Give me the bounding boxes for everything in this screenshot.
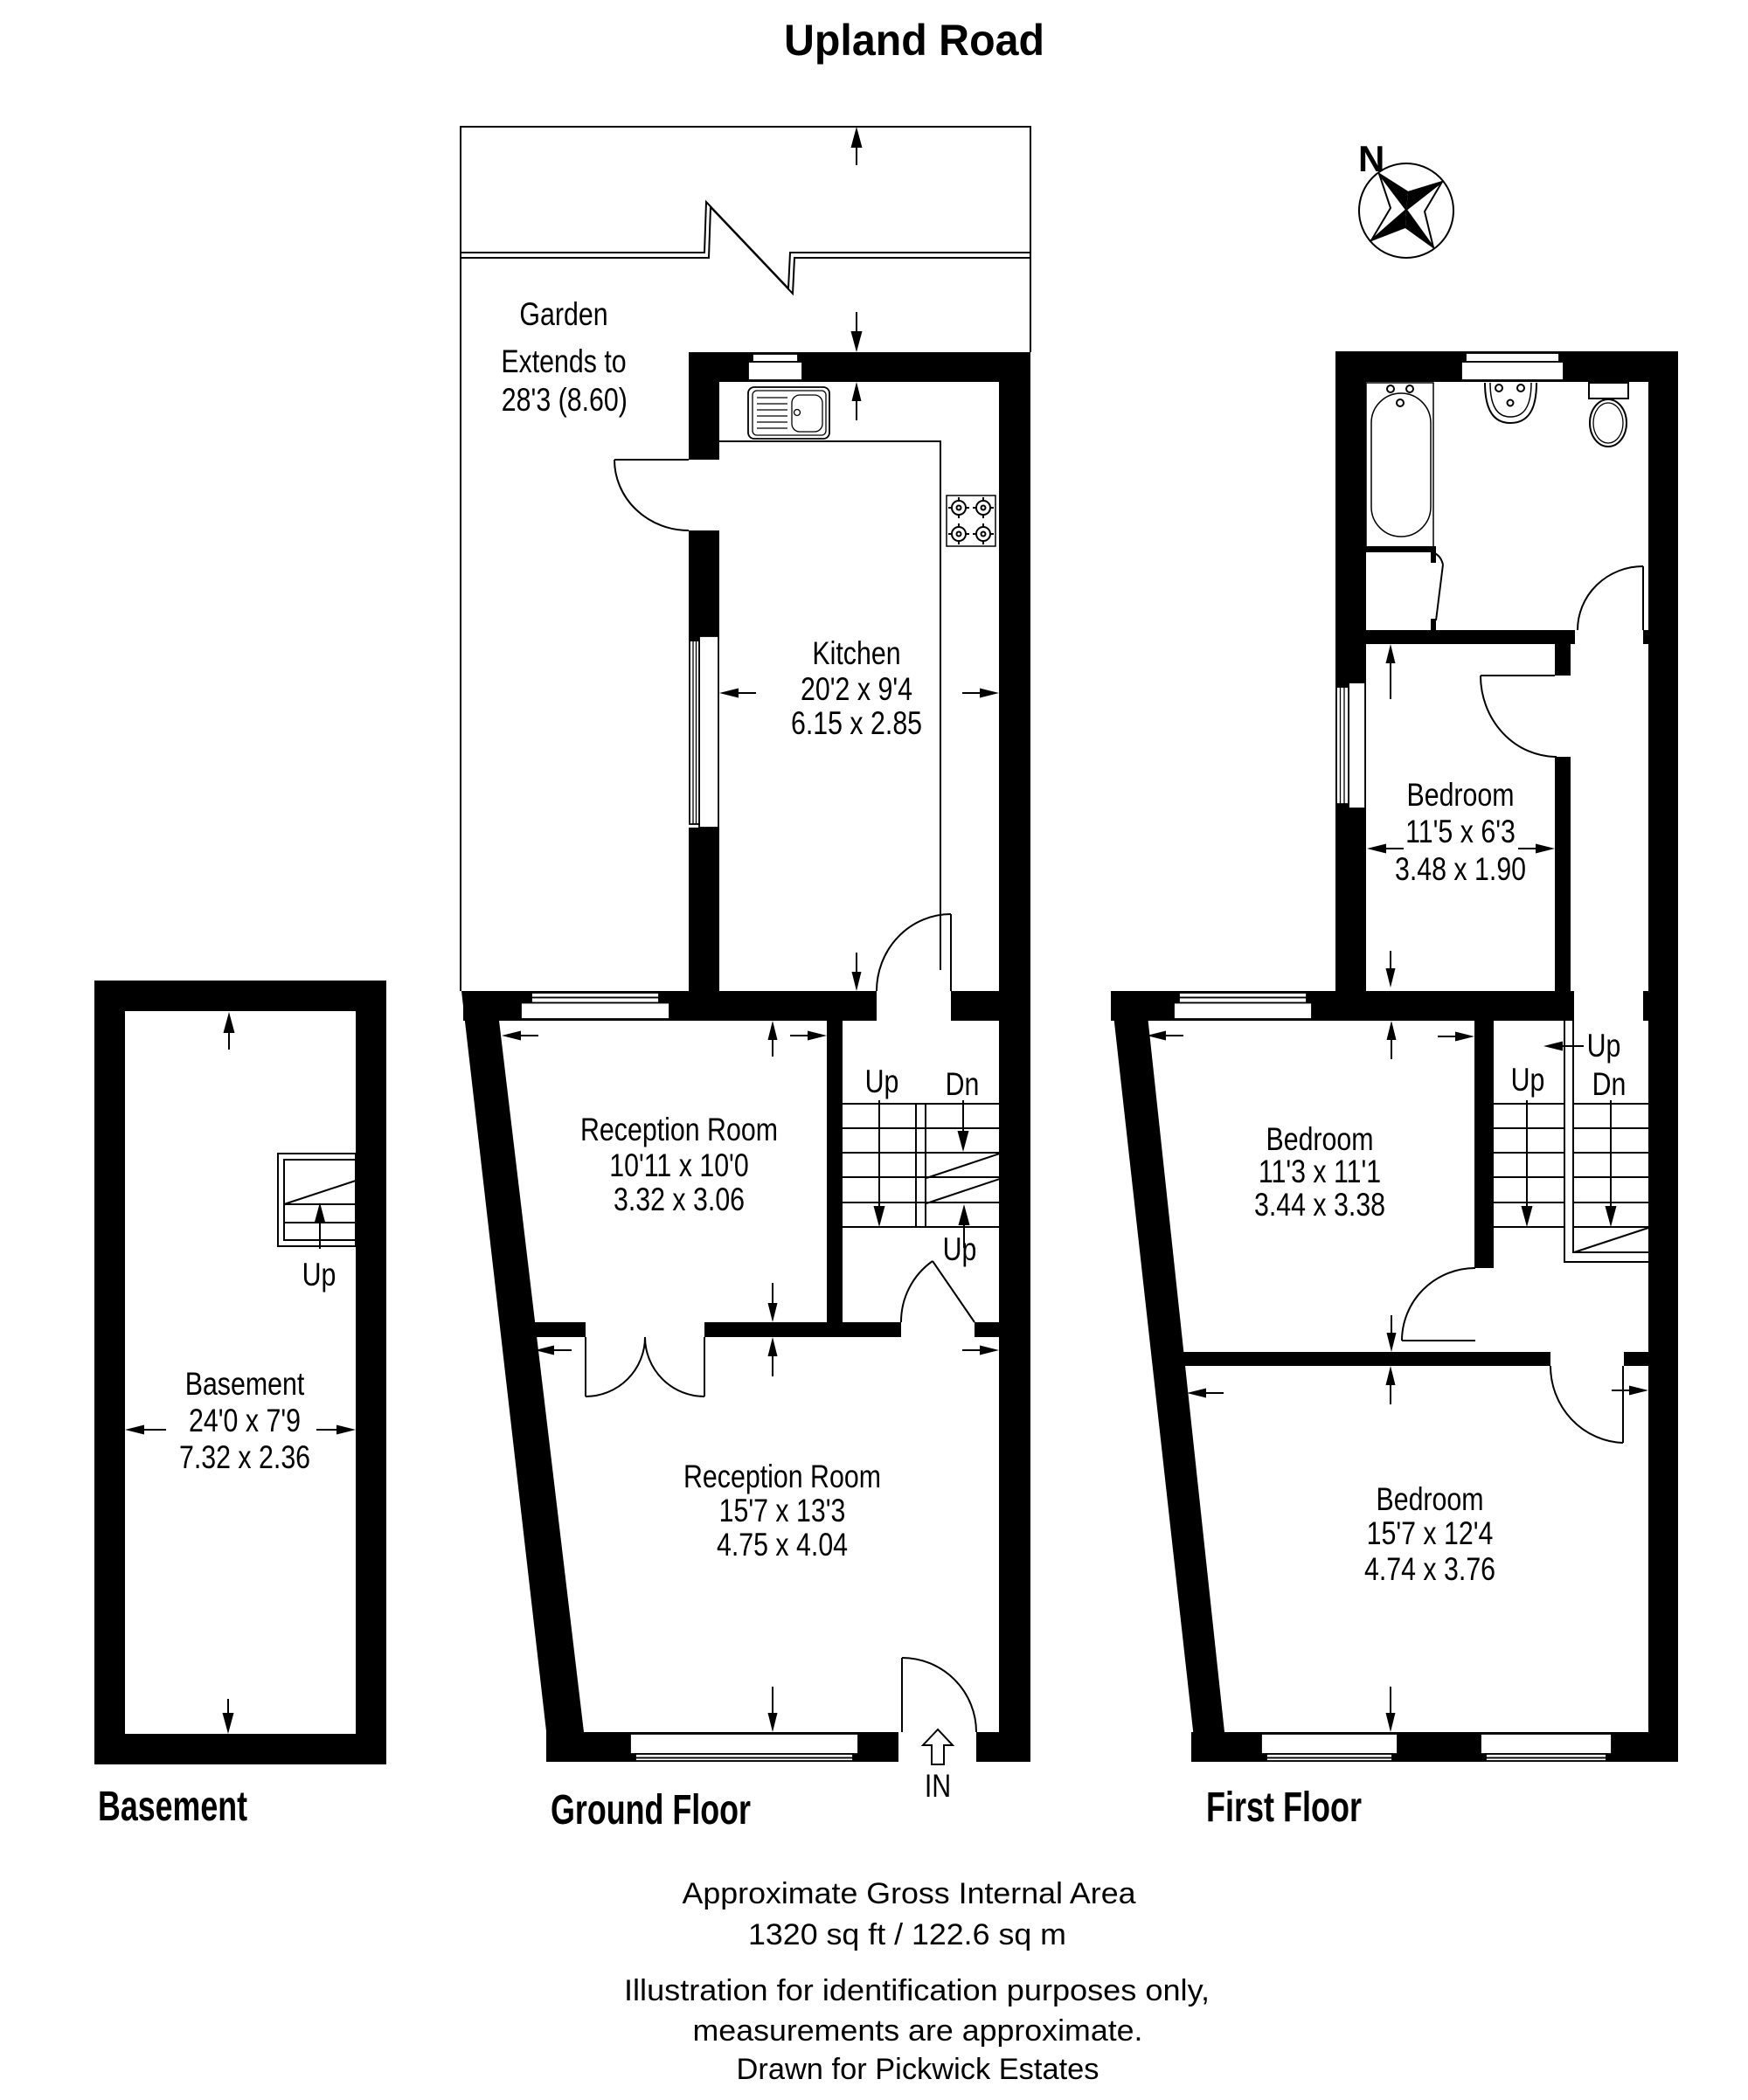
svg-text:Up: Up (943, 1231, 977, 1268)
svg-text:Extends to: Extends to (501, 343, 626, 380)
svg-text:Up: Up (1587, 1028, 1621, 1064)
svg-text:3.48 x 1.90: 3.48 x 1.90 (1395, 851, 1526, 888)
svg-text:Reception Room: Reception Room (580, 1112, 778, 1148)
svg-text:15'7 x 12'4: 15'7 x 12'4 (1367, 1515, 1494, 1552)
svg-text:11'3 x 11'1: 11'3 x 11'1 (1259, 1154, 1381, 1190)
svg-text:28'3 (8.60): 28'3 (8.60) (502, 382, 628, 419)
svg-text:4.74 x 3.76: 4.74 x 3.76 (1364, 1551, 1495, 1588)
svg-text:Approximate Gross Internal Are: Approximate Gross Internal Area (683, 1877, 1136, 1910)
svg-text:1320 sq ft / 122.6 sq m: 1320 sq ft / 122.6 sq m (748, 1918, 1066, 1951)
svg-text:measurements are approximate.: measurements are approximate. (693, 2014, 1143, 2048)
svg-text:Illustration for identificatio: Illustration for identification purposes… (624, 1974, 1210, 2007)
svg-text:7.32 x 2.36: 7.32 x 2.36 (179, 1439, 310, 1476)
svg-text:Bedroom: Bedroom (1376, 1481, 1483, 1518)
svg-text:6.15 x 2.85: 6.15 x 2.85 (791, 705, 922, 742)
svg-text:24'0 x 7'9: 24'0 x 7'9 (189, 1403, 301, 1439)
svg-text:Basement: Basement (98, 1784, 247, 1830)
svg-text:Reception Room: Reception Room (683, 1459, 881, 1495)
svg-text:First Floor: First Floor (1206, 1785, 1362, 1831)
svg-text:Ground Floor: Ground Floor (551, 1787, 751, 1833)
svg-text:Dn: Dn (1592, 1066, 1627, 1103)
svg-text:10'11 x 10'0: 10'11 x 10'0 (609, 1147, 748, 1184)
svg-text:Drawn for Pickwick Estates: Drawn for Pickwick Estates (737, 2053, 1099, 2086)
svg-text:Up: Up (865, 1064, 899, 1100)
svg-text:20'2 x 9'4: 20'2 x 9'4 (801, 671, 912, 708)
svg-text:Upland Road: Upland Road (784, 16, 1044, 65)
svg-text:Up: Up (1511, 1062, 1545, 1099)
svg-text:Dn: Dn (946, 1066, 980, 1103)
svg-text:4.75 x 4.04: 4.75 x 4.04 (717, 1527, 848, 1563)
svg-text:N: N (1358, 138, 1384, 179)
svg-text:3.44 x 3.38: 3.44 x 3.38 (1254, 1187, 1385, 1223)
svg-text:IN: IN (925, 1768, 951, 1805)
svg-text:Bedroom: Bedroom (1406, 777, 1514, 814)
svg-text:Up: Up (302, 1257, 336, 1293)
svg-text:Kitchen: Kitchen (812, 635, 900, 672)
svg-text:15'7 x 13'3: 15'7 x 13'3 (719, 1493, 846, 1529)
svg-text:Basement: Basement (185, 1366, 305, 1403)
svg-text:Bedroom: Bedroom (1266, 1121, 1373, 1158)
svg-text:3.32 x 3.06: 3.32 x 3.06 (614, 1182, 745, 1218)
svg-text:11'5 x 6'3: 11'5 x 6'3 (1405, 814, 1516, 850)
svg-text:Garden: Garden (519, 296, 607, 333)
